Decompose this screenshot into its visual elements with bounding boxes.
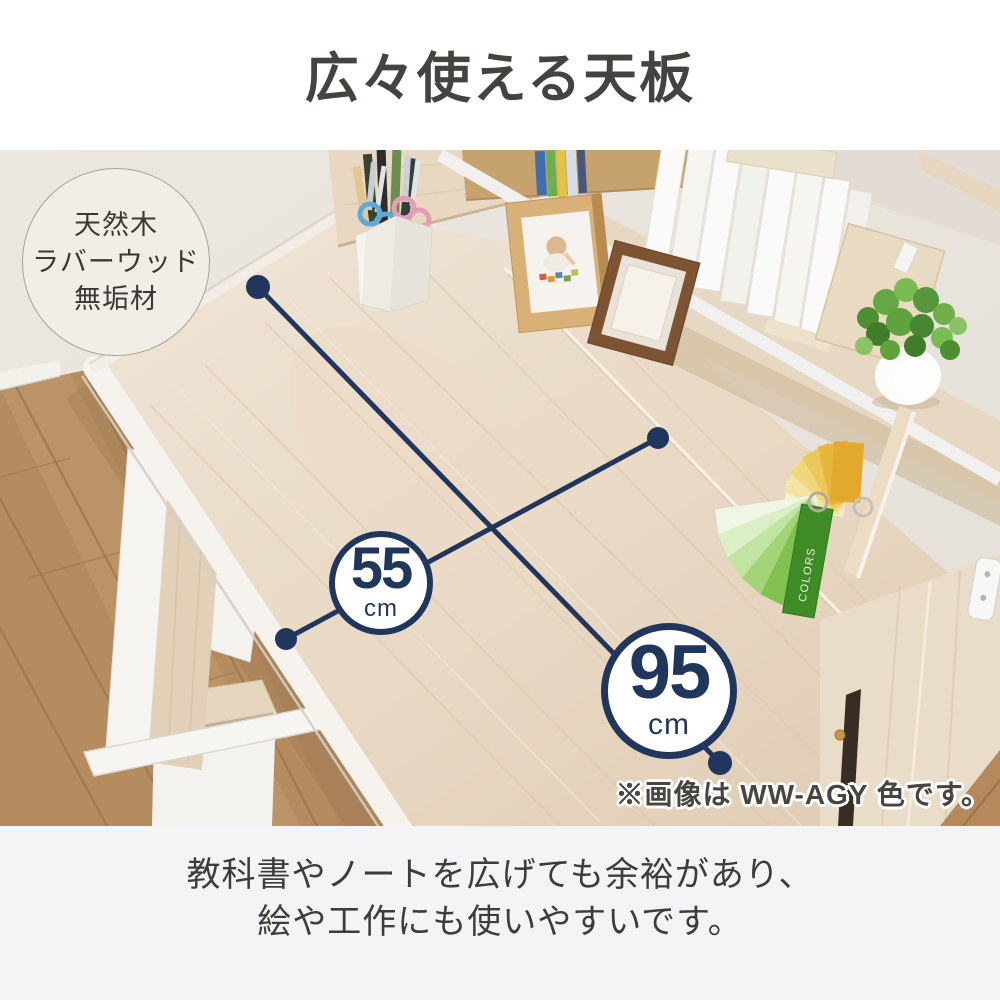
measurement-depth-55cm: 55 cm [329,531,433,635]
depth-unit: cm [364,595,398,623]
material-badge: 天然木 ラバーウッド 無垢材 [22,168,210,356]
brass-screw [835,730,845,740]
color-note: ※画像は WW-AGY 色です。 [615,773,990,813]
page-title: 広々使える天板 [0,34,1000,113]
measurement-width-95cm: 95 cm [601,623,737,759]
description: 教科書やノートを広げても余裕があり、 絵や工作にも使いやすいです。 [0,826,1000,1000]
width-value: 95 [629,640,710,707]
width-unit: cm [648,708,690,742]
book-spines [535,150,587,199]
depth-value: 55 [351,543,412,594]
description-line-1: 教科書やノートを広げても余裕があり、 [0,852,1000,899]
product-photo: COLORS 天然木 ラバーウッド 無垢材 55 cm 95 cm ※画像は W… [0,150,1000,826]
badge-line: ラバーウッド [32,244,200,281]
description-line-2: 絵や工作にも使いやすいです。 [0,899,1000,946]
badge-line: 天然木 [74,207,158,244]
badge-line: 無垢材 [74,281,158,318]
